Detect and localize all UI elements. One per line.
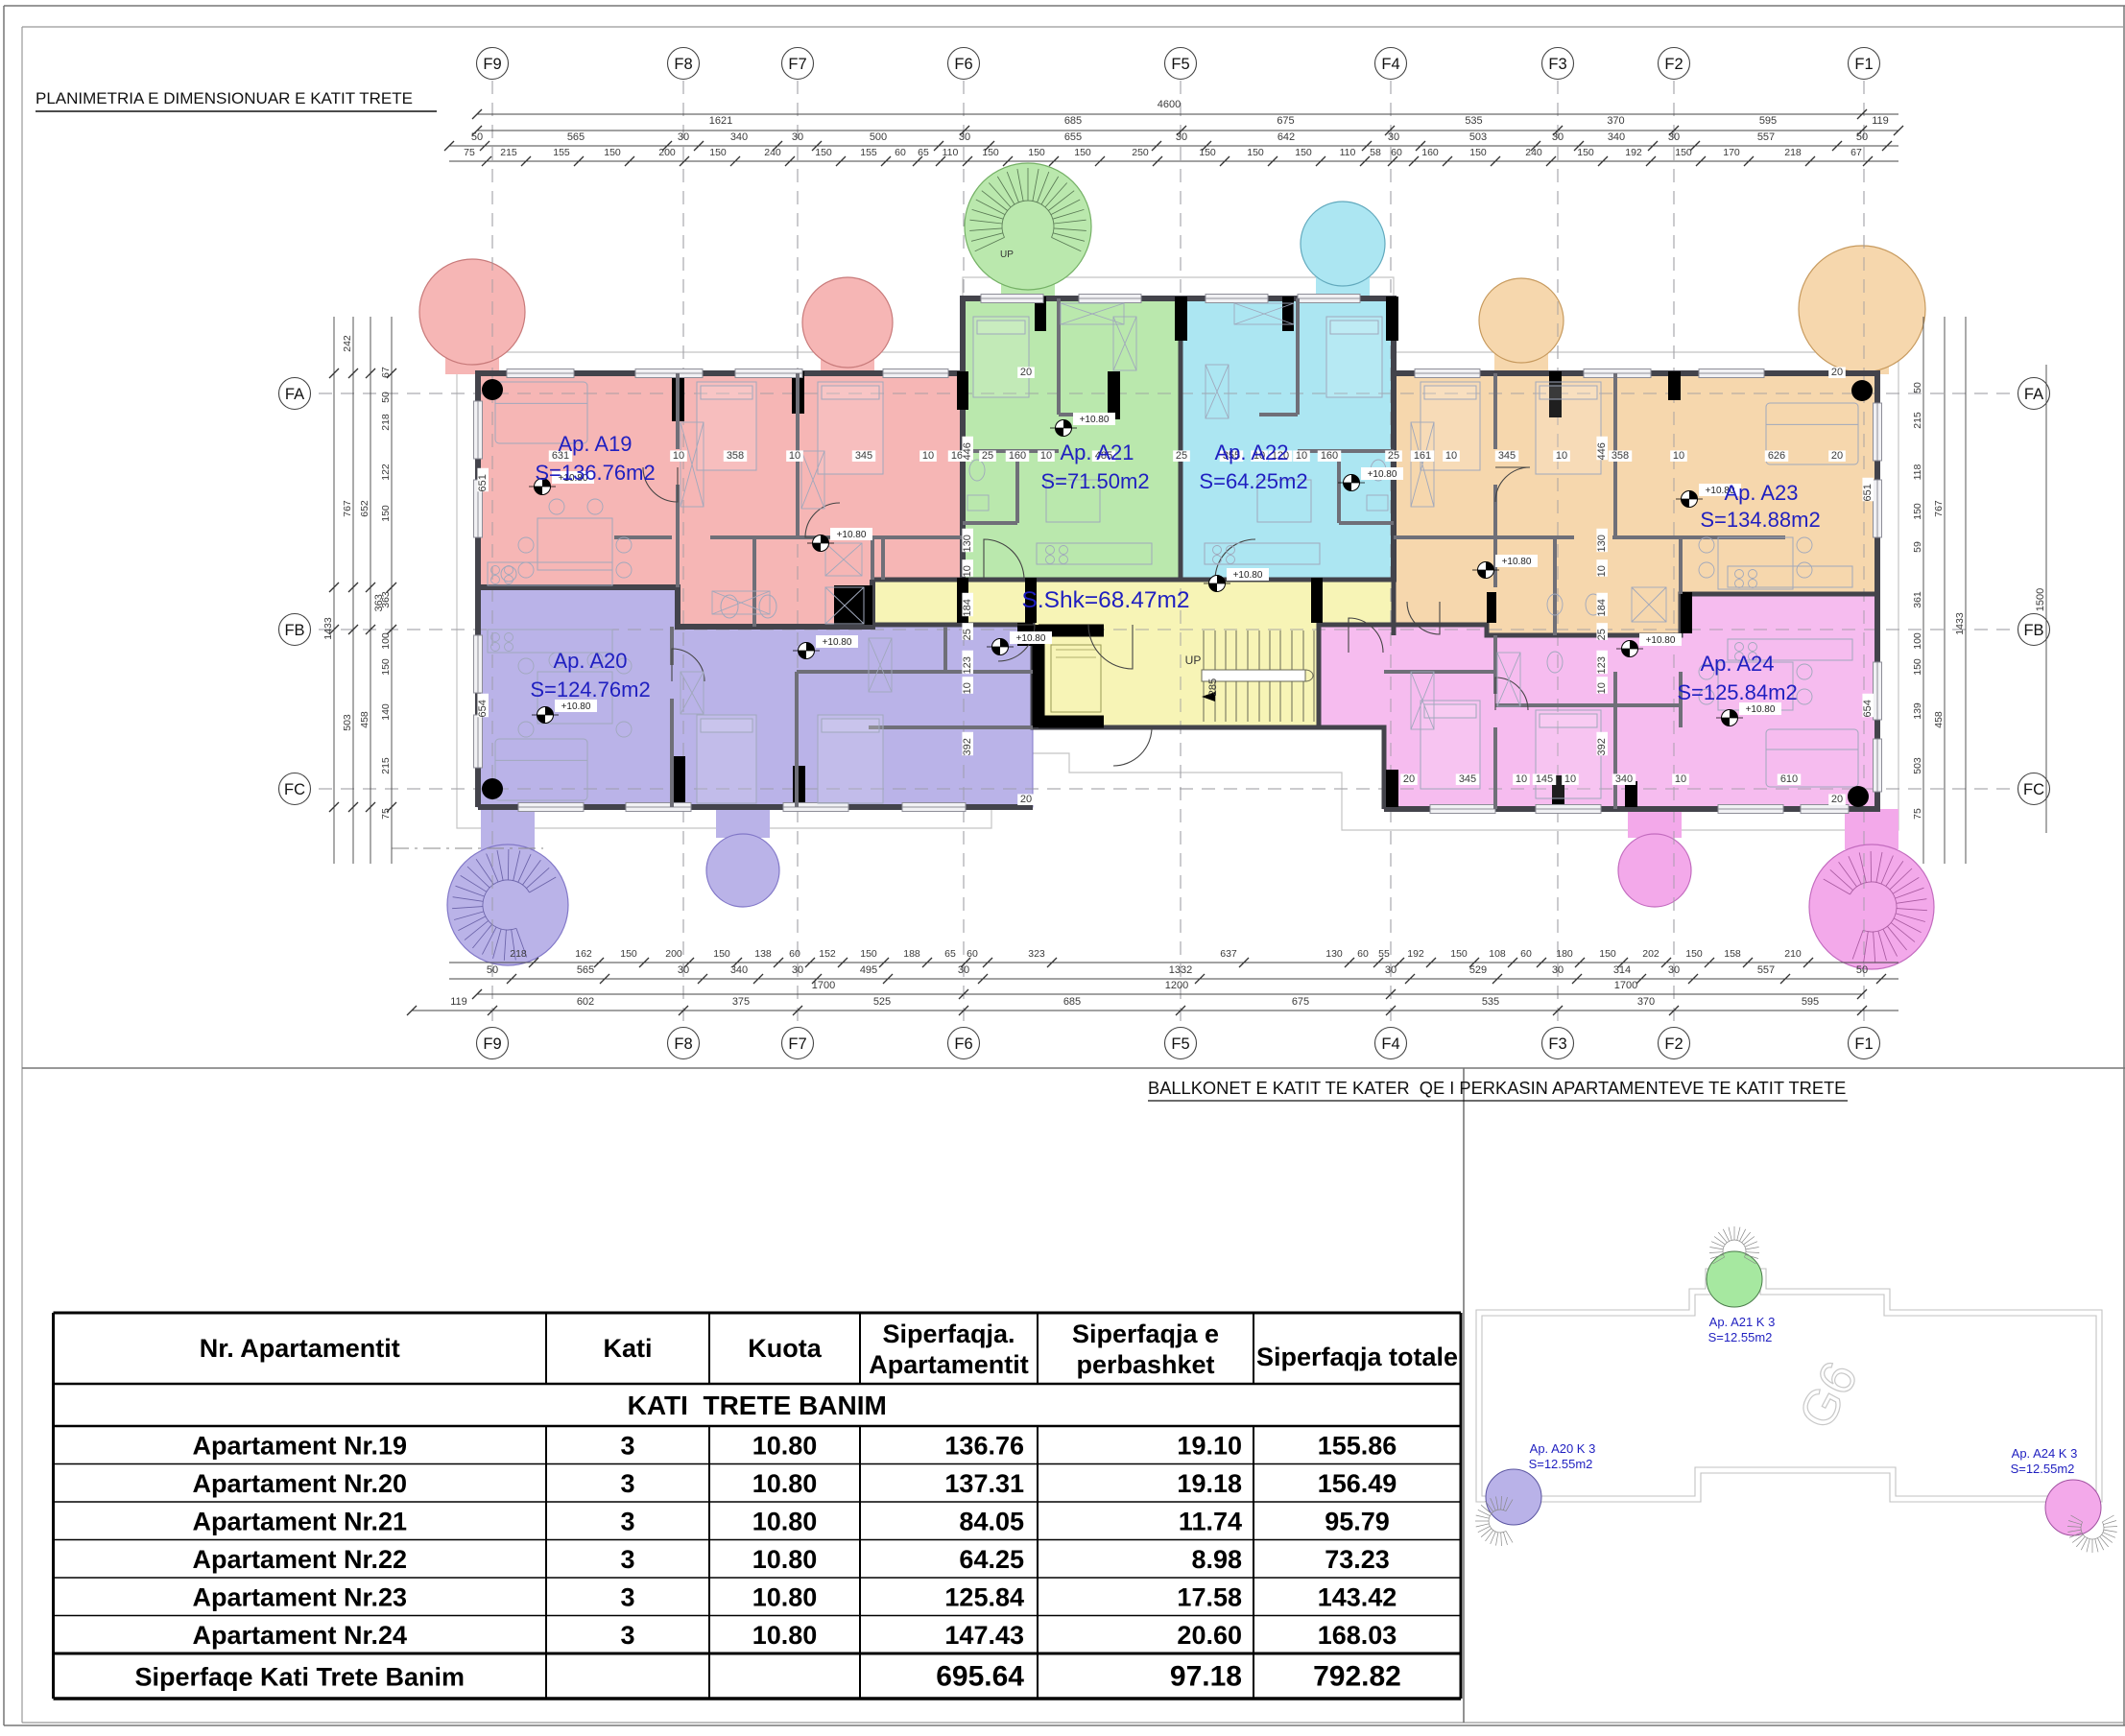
svg-text:20: 20 xyxy=(1831,794,1843,805)
svg-text:3: 3 xyxy=(620,1582,634,1611)
svg-text:19.10: 19.10 xyxy=(1177,1431,1242,1460)
svg-text:218: 218 xyxy=(510,948,527,960)
svg-text:595: 595 xyxy=(1759,115,1777,127)
svg-text:150: 150 xyxy=(1295,147,1312,158)
svg-text:10: 10 xyxy=(1516,773,1527,785)
svg-text:1500: 1500 xyxy=(2035,588,2046,611)
svg-text:150: 150 xyxy=(604,147,621,158)
svg-text:30: 30 xyxy=(1668,964,1680,976)
svg-text:10: 10 xyxy=(1564,773,1576,785)
svg-text:19.18: 19.18 xyxy=(1177,1469,1242,1498)
svg-text:20.60: 20.60 xyxy=(1177,1621,1242,1650)
svg-text:S=125.84m2: S=125.84m2 xyxy=(1677,680,1797,704)
svg-text:140: 140 xyxy=(380,703,392,721)
svg-text:30: 30 xyxy=(959,131,970,143)
svg-text:150: 150 xyxy=(1912,503,1923,520)
svg-text:17.58: 17.58 xyxy=(1177,1582,1242,1611)
svg-text:565: 565 xyxy=(577,964,594,976)
svg-text:192: 192 xyxy=(1625,147,1642,158)
svg-text:8.98: 8.98 xyxy=(1191,1545,1242,1574)
svg-text:25: 25 xyxy=(962,629,973,640)
svg-text:130: 130 xyxy=(1325,948,1343,960)
svg-text:F4: F4 xyxy=(1381,1035,1399,1053)
svg-text:PLANIMETRIA E DIMENSIONUAR E K: PLANIMETRIA E DIMENSIONUAR E KATIT TRETE xyxy=(36,89,413,107)
svg-text:10.80: 10.80 xyxy=(752,1469,818,1498)
svg-text:25: 25 xyxy=(1176,450,1187,462)
svg-text:30: 30 xyxy=(958,964,969,976)
svg-text:20: 20 xyxy=(1831,450,1843,462)
svg-text:188: 188 xyxy=(903,948,920,960)
svg-text:1700: 1700 xyxy=(812,980,835,991)
svg-text:25: 25 xyxy=(1388,450,1399,462)
svg-text:100: 100 xyxy=(1912,632,1923,650)
svg-text:S=124.76m2: S=124.76m2 xyxy=(530,678,650,702)
svg-text:S=136.76m2: S=136.76m2 xyxy=(535,461,655,485)
svg-text:250: 250 xyxy=(1132,147,1149,158)
svg-text:F3: F3 xyxy=(1548,1035,1566,1053)
svg-text:Ap. A21: Ap. A21 xyxy=(1060,440,1134,464)
svg-text:4600: 4600 xyxy=(1158,99,1181,110)
svg-text:50: 50 xyxy=(471,131,483,143)
svg-text:50: 50 xyxy=(380,392,392,403)
svg-text:F5: F5 xyxy=(1171,1035,1189,1053)
svg-text:150: 150 xyxy=(1199,147,1216,158)
svg-text:150: 150 xyxy=(1450,948,1468,960)
svg-text:25: 25 xyxy=(1596,629,1608,640)
svg-text:180: 180 xyxy=(1556,948,1573,960)
svg-text:122: 122 xyxy=(380,464,392,481)
svg-text:150: 150 xyxy=(982,147,999,158)
svg-text:210: 210 xyxy=(1784,948,1802,960)
svg-text:108: 108 xyxy=(1489,948,1506,960)
svg-text:FB: FB xyxy=(2023,622,2043,639)
svg-text:75: 75 xyxy=(464,147,475,158)
svg-text:162: 162 xyxy=(575,948,592,960)
svg-text:242: 242 xyxy=(342,335,353,352)
svg-text:685: 685 xyxy=(1064,115,1082,127)
svg-text:FB: FB xyxy=(284,622,304,639)
svg-text:340: 340 xyxy=(730,964,748,976)
svg-text:S.Shk=68.47m2: S.Shk=68.47m2 xyxy=(1021,587,1189,613)
svg-text:10: 10 xyxy=(1596,565,1608,577)
svg-text:FC: FC xyxy=(2023,781,2044,798)
svg-text:+10.80: +10.80 xyxy=(1233,570,1263,581)
svg-text:FA: FA xyxy=(2024,386,2043,403)
svg-text:64.25: 64.25 xyxy=(959,1545,1024,1574)
svg-text:S=71.50m2: S=71.50m2 xyxy=(1040,469,1149,493)
svg-text:60: 60 xyxy=(1391,147,1402,158)
svg-text:10.80: 10.80 xyxy=(752,1431,818,1460)
svg-text:60: 60 xyxy=(789,948,800,960)
svg-text:F4: F4 xyxy=(1381,56,1399,73)
svg-text:FA: FA xyxy=(285,386,304,403)
svg-text:160: 160 xyxy=(1421,147,1439,158)
svg-text:F3: F3 xyxy=(1548,56,1566,73)
svg-text:503: 503 xyxy=(342,714,353,731)
svg-text:150: 150 xyxy=(1912,658,1923,676)
svg-text:675: 675 xyxy=(1292,996,1309,1008)
svg-text:202: 202 xyxy=(1642,948,1659,960)
svg-text:25: 25 xyxy=(982,450,993,462)
svg-text:10: 10 xyxy=(962,682,973,694)
svg-text:358: 358 xyxy=(1612,450,1629,462)
svg-text:557: 557 xyxy=(1757,131,1775,143)
svg-text:10: 10 xyxy=(673,450,684,462)
svg-text:123: 123 xyxy=(1596,656,1608,674)
svg-text:156.49: 156.49 xyxy=(1318,1469,1397,1498)
svg-text:F8: F8 xyxy=(674,56,692,73)
svg-text:+10.80: +10.80 xyxy=(837,530,867,540)
svg-text:Ap. A20 K 3: Ap. A20 K 3 xyxy=(1530,1441,1596,1456)
svg-text:158: 158 xyxy=(1724,948,1741,960)
svg-text:3: 3 xyxy=(620,1469,634,1498)
svg-text:Nr. Apartamentit: Nr. Apartamentit xyxy=(200,1334,400,1363)
svg-text:+10.80: +10.80 xyxy=(561,702,591,712)
svg-text:150: 150 xyxy=(1247,147,1264,158)
svg-text:651: 651 xyxy=(477,474,489,491)
svg-text:S=12.55m2: S=12.55m2 xyxy=(2011,1462,2075,1476)
svg-text:67: 67 xyxy=(380,367,392,378)
svg-text:200: 200 xyxy=(665,948,682,960)
svg-text:50: 50 xyxy=(1856,131,1868,143)
svg-text:160: 160 xyxy=(1321,450,1338,462)
svg-text:60: 60 xyxy=(967,948,978,960)
svg-text:652: 652 xyxy=(359,500,370,517)
svg-text:565: 565 xyxy=(567,131,585,143)
svg-text:F1: F1 xyxy=(1854,1035,1873,1053)
svg-text:792.82: 792.82 xyxy=(1313,1661,1401,1693)
svg-text:314: 314 xyxy=(1613,964,1631,976)
svg-text:+10.80: +10.80 xyxy=(1016,633,1046,644)
svg-text:BALLKONET E KATIT TE KATER QE: BALLKONET E KATIT TE KATER QE I PERKASIN… xyxy=(1148,1078,1846,1098)
svg-text:685: 685 xyxy=(1063,996,1081,1008)
svg-text:Apartament Nr.21: Apartament Nr.21 xyxy=(192,1507,407,1535)
svg-text:S=12.55m2: S=12.55m2 xyxy=(1529,1457,1593,1471)
svg-text:503: 503 xyxy=(1469,131,1487,143)
svg-text:1700: 1700 xyxy=(1614,980,1637,991)
svg-text:500: 500 xyxy=(870,131,887,143)
svg-text:20: 20 xyxy=(1831,367,1843,378)
svg-text:215: 215 xyxy=(1912,412,1923,429)
svg-text:F2: F2 xyxy=(1664,1035,1683,1053)
svg-text:+10.80: +10.80 xyxy=(1080,415,1110,425)
svg-text:Ap. A24 K 3: Ap. A24 K 3 xyxy=(2012,1446,2078,1461)
svg-text:192: 192 xyxy=(1407,948,1424,960)
svg-text:10: 10 xyxy=(922,450,934,462)
svg-text:F6: F6 xyxy=(954,56,972,73)
svg-text:145: 145 xyxy=(1536,773,1553,785)
svg-text:160: 160 xyxy=(1009,450,1026,462)
svg-text:446: 446 xyxy=(962,442,973,460)
svg-text:50: 50 xyxy=(1912,382,1923,393)
svg-text:+10.80: +10.80 xyxy=(1646,635,1676,646)
svg-text:59: 59 xyxy=(1912,541,1923,553)
svg-text:345: 345 xyxy=(1498,450,1516,462)
svg-text:KATI TRETE BANIM: KATI TRETE BANIM xyxy=(628,1391,887,1420)
svg-text:215: 215 xyxy=(500,147,517,158)
svg-text:345: 345 xyxy=(855,450,872,462)
svg-text:30: 30 xyxy=(1668,131,1680,143)
svg-text:215: 215 xyxy=(380,757,392,774)
svg-text:392: 392 xyxy=(962,738,973,755)
svg-text:73.23: 73.23 xyxy=(1325,1545,1390,1574)
svg-text:340: 340 xyxy=(1608,131,1625,143)
svg-text:240: 240 xyxy=(764,147,781,158)
svg-text:200: 200 xyxy=(658,147,676,158)
svg-text:10: 10 xyxy=(1673,450,1684,462)
svg-text:Ap. A24: Ap. A24 xyxy=(1700,652,1774,676)
svg-text:150: 150 xyxy=(1028,147,1045,158)
svg-text:30: 30 xyxy=(1552,131,1564,143)
svg-text:3: 3 xyxy=(620,1507,634,1535)
svg-text:100: 100 xyxy=(380,632,392,650)
svg-text:F8: F8 xyxy=(674,1035,692,1053)
svg-text:170: 170 xyxy=(1723,147,1740,158)
svg-text:F7: F7 xyxy=(788,56,806,73)
svg-text:75: 75 xyxy=(1912,808,1923,820)
svg-text:10: 10 xyxy=(789,450,800,462)
svg-text:340: 340 xyxy=(730,131,748,143)
svg-text:137.31: 137.31 xyxy=(944,1469,1024,1498)
svg-text:+10.80: +10.80 xyxy=(823,637,852,648)
svg-text:150: 150 xyxy=(1577,147,1594,158)
svg-text:FC: FC xyxy=(284,781,305,798)
svg-text:150: 150 xyxy=(709,147,727,158)
svg-text:Siperfaqe Kati Trete Banim: Siperfaqe Kati Trete Banim xyxy=(134,1663,465,1692)
svg-text:10: 10 xyxy=(1296,450,1307,462)
svg-text:218: 218 xyxy=(1784,147,1802,158)
svg-text:55: 55 xyxy=(1378,948,1390,960)
svg-text:30: 30 xyxy=(792,131,803,143)
svg-text:637: 637 xyxy=(1220,948,1237,960)
svg-text:84.05: 84.05 xyxy=(959,1507,1024,1535)
svg-text:65: 65 xyxy=(944,948,956,960)
svg-text:595: 595 xyxy=(1802,996,1819,1008)
svg-text:65: 65 xyxy=(918,147,929,158)
svg-text:10.80: 10.80 xyxy=(752,1545,818,1574)
svg-text:610: 610 xyxy=(1780,773,1798,785)
svg-text:535: 535 xyxy=(1465,115,1482,127)
svg-text:529: 529 xyxy=(1469,964,1487,976)
svg-text:130: 130 xyxy=(962,535,973,552)
svg-text:525: 525 xyxy=(873,996,891,1008)
svg-text:675: 675 xyxy=(1277,115,1294,127)
svg-text:370: 370 xyxy=(1637,996,1655,1008)
svg-text:1200: 1200 xyxy=(1165,980,1188,991)
svg-text:Apartament Nr.24: Apartament Nr.24 xyxy=(192,1621,407,1650)
svg-text:125.84: 125.84 xyxy=(944,1582,1024,1611)
svg-text:150: 150 xyxy=(380,505,392,522)
svg-text:10.80: 10.80 xyxy=(752,1507,818,1535)
svg-text:30: 30 xyxy=(1385,964,1397,976)
svg-text:361: 361 xyxy=(1912,591,1923,608)
svg-text:F2: F2 xyxy=(1664,56,1683,73)
svg-text:118: 118 xyxy=(1912,464,1923,480)
svg-text:168.03: 168.03 xyxy=(1318,1621,1397,1650)
svg-text:F7: F7 xyxy=(788,1035,806,1053)
svg-text:20: 20 xyxy=(1020,367,1032,378)
svg-text:642: 642 xyxy=(1277,131,1295,143)
svg-text:Apartament Nr.22: Apartament Nr.22 xyxy=(192,1545,407,1574)
svg-text:60: 60 xyxy=(895,147,906,158)
svg-text:F5: F5 xyxy=(1171,56,1189,73)
svg-text:Apartament Nr.20: Apartament Nr.20 xyxy=(192,1469,407,1498)
svg-text:10: 10 xyxy=(962,565,973,577)
svg-text:150: 150 xyxy=(860,948,877,960)
svg-text:1433: 1433 xyxy=(322,617,334,640)
svg-text:150: 150 xyxy=(713,948,730,960)
svg-text:218: 218 xyxy=(380,414,392,431)
svg-text:10: 10 xyxy=(1556,450,1567,462)
svg-text:363: 363 xyxy=(380,591,392,608)
svg-text:+10.80: +10.80 xyxy=(1368,469,1397,480)
svg-text:150: 150 xyxy=(1074,147,1091,158)
svg-text:150: 150 xyxy=(380,658,392,676)
svg-text:3: 3 xyxy=(620,1431,634,1460)
svg-text:503: 503 xyxy=(1912,757,1923,774)
svg-text:60: 60 xyxy=(1357,948,1369,960)
svg-text:3: 3 xyxy=(620,1621,634,1650)
svg-text:Ap. A21 K 3: Ap. A21 K 3 xyxy=(1709,1315,1776,1329)
svg-text:Kati: Kati xyxy=(603,1334,652,1363)
svg-text:30: 30 xyxy=(678,131,689,143)
svg-text:S=134.88m2: S=134.88m2 xyxy=(1700,508,1820,532)
svg-text:10: 10 xyxy=(1445,450,1457,462)
svg-text:155.86: 155.86 xyxy=(1318,1431,1397,1460)
svg-text:626: 626 xyxy=(1768,450,1785,462)
svg-text:155: 155 xyxy=(553,147,570,158)
svg-text:58: 58 xyxy=(1370,147,1381,158)
svg-text:161: 161 xyxy=(1414,450,1431,462)
svg-text:136.76: 136.76 xyxy=(944,1431,1024,1460)
svg-text:97.18: 97.18 xyxy=(1170,1661,1242,1693)
svg-text:S=64.25m2: S=64.25m2 xyxy=(1199,469,1307,493)
svg-text:535: 535 xyxy=(1482,996,1499,1008)
svg-text:10: 10 xyxy=(1596,682,1608,694)
svg-text:10: 10 xyxy=(1675,773,1686,785)
svg-text:30: 30 xyxy=(792,964,803,976)
svg-text:Ap. A20: Ap. A20 xyxy=(553,649,627,673)
svg-text:495: 495 xyxy=(860,964,877,976)
svg-text:119: 119 xyxy=(450,996,467,1008)
svg-text:F9: F9 xyxy=(483,1035,501,1053)
svg-text:695.64: 695.64 xyxy=(936,1661,1024,1693)
svg-text:S=12.55m2: S=12.55m2 xyxy=(1708,1330,1773,1344)
svg-text:458: 458 xyxy=(359,711,370,728)
svg-text:655: 655 xyxy=(1064,131,1082,143)
svg-text:110: 110 xyxy=(1340,147,1356,158)
svg-text:11.74: 11.74 xyxy=(1179,1507,1242,1535)
svg-text:Siperfaqja totale: Siperfaqja totale xyxy=(1256,1343,1458,1371)
svg-text:50: 50 xyxy=(487,964,498,976)
svg-text:F1: F1 xyxy=(1854,56,1873,73)
svg-text:30: 30 xyxy=(678,964,689,976)
svg-text:67: 67 xyxy=(1850,147,1862,158)
svg-text:150: 150 xyxy=(1469,147,1487,158)
svg-text:Apartamentit: Apartamentit xyxy=(869,1350,1029,1379)
svg-text:654: 654 xyxy=(477,700,489,717)
svg-text:+10.80: +10.80 xyxy=(1502,557,1532,567)
svg-text:10.80: 10.80 xyxy=(752,1621,818,1650)
svg-text:184: 184 xyxy=(1596,599,1608,616)
svg-text:130: 130 xyxy=(1596,535,1608,552)
svg-text:Ap. A23: Ap. A23 xyxy=(1724,481,1798,505)
svg-text:F6: F6 xyxy=(954,1035,972,1053)
svg-text:767: 767 xyxy=(342,500,353,517)
svg-text:345: 345 xyxy=(1459,773,1476,785)
svg-text:60: 60 xyxy=(1520,948,1532,960)
svg-text:602: 602 xyxy=(577,996,594,1008)
svg-text:123: 123 xyxy=(962,656,973,674)
svg-text:10.80: 10.80 xyxy=(752,1582,818,1611)
svg-text:75: 75 xyxy=(380,808,392,820)
svg-text:143.42: 143.42 xyxy=(1318,1582,1397,1611)
svg-text:375: 375 xyxy=(732,996,750,1008)
svg-text:651: 651 xyxy=(1862,484,1874,501)
svg-text:147.43: 147.43 xyxy=(944,1621,1024,1650)
svg-text:152: 152 xyxy=(819,948,836,960)
svg-text:1332: 1332 xyxy=(1169,964,1192,976)
svg-text:323: 323 xyxy=(1028,948,1045,960)
svg-text:557: 557 xyxy=(1757,964,1775,976)
svg-text:392: 392 xyxy=(1596,738,1608,755)
svg-text:458: 458 xyxy=(1933,711,1945,728)
svg-text:Kuota: Kuota xyxy=(748,1334,822,1363)
svg-text:Apartament Nr.23: Apartament Nr.23 xyxy=(192,1582,407,1611)
svg-text:95.79: 95.79 xyxy=(1325,1507,1390,1535)
svg-text:150: 150 xyxy=(1685,948,1703,960)
svg-text:358: 358 xyxy=(727,450,744,462)
svg-text:1621: 1621 xyxy=(709,115,732,127)
svg-text:Ap. A22: Ap. A22 xyxy=(1214,440,1288,464)
svg-text:240: 240 xyxy=(1525,147,1542,158)
svg-text:10: 10 xyxy=(1040,450,1052,462)
svg-text:139: 139 xyxy=(1912,702,1923,720)
svg-text:654: 654 xyxy=(1862,700,1874,717)
svg-text:20: 20 xyxy=(1020,794,1032,805)
svg-text:30: 30 xyxy=(1388,131,1399,143)
svg-text:138: 138 xyxy=(754,948,772,960)
svg-text:119: 119 xyxy=(1872,115,1889,127)
svg-text:30: 30 xyxy=(1552,964,1564,976)
svg-text:20: 20 xyxy=(1403,773,1415,785)
svg-text:184: 184 xyxy=(962,599,973,616)
svg-text:+10.80: +10.80 xyxy=(1746,704,1776,715)
svg-text:110: 110 xyxy=(943,147,959,158)
svg-text:150: 150 xyxy=(620,948,637,960)
svg-text:Ap. A19: Ap. A19 xyxy=(558,432,632,456)
svg-text:perbashket: perbashket xyxy=(1076,1350,1214,1379)
svg-text:150: 150 xyxy=(1599,948,1616,960)
svg-text:30: 30 xyxy=(1176,131,1187,143)
svg-text:1433: 1433 xyxy=(1954,612,1966,635)
svg-text:50: 50 xyxy=(1856,964,1868,976)
svg-text:285: 285 xyxy=(1207,678,1219,696)
svg-text:Apartament Nr.19: Apartament Nr.19 xyxy=(192,1431,407,1460)
svg-text:3: 3 xyxy=(620,1545,634,1574)
svg-text:370: 370 xyxy=(1607,115,1624,127)
svg-text:150: 150 xyxy=(1675,147,1692,158)
svg-text:F9: F9 xyxy=(483,56,501,73)
svg-text:UP: UP xyxy=(1000,250,1014,260)
svg-text:155: 155 xyxy=(860,147,877,158)
svg-text:340: 340 xyxy=(1615,773,1633,785)
svg-text:446: 446 xyxy=(1596,442,1608,460)
svg-text:UP: UP xyxy=(1185,654,1202,667)
svg-text:150: 150 xyxy=(815,147,832,158)
svg-text:767: 767 xyxy=(1933,500,1945,517)
svg-text:Siperfaqja e: Siperfaqja e xyxy=(1072,1320,1219,1348)
